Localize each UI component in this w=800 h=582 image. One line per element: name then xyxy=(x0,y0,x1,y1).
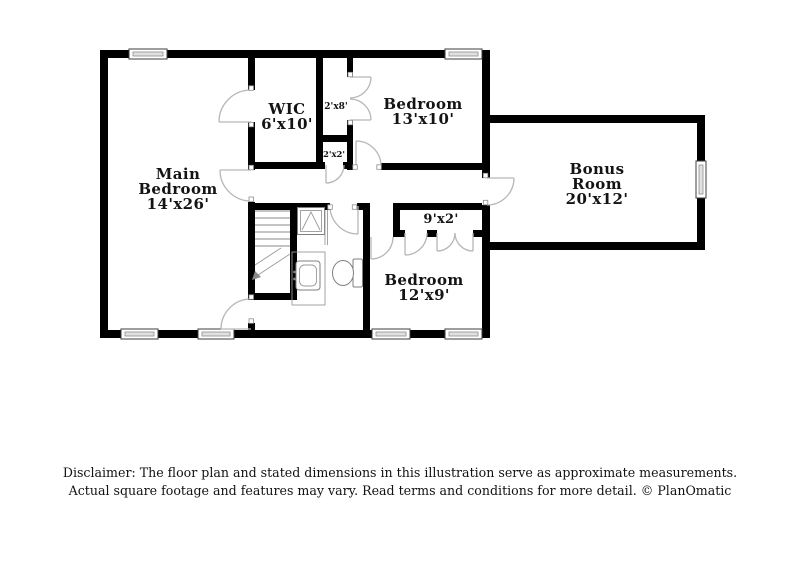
disclaimer-line1: Disclaimer: The floor plan and stated di… xyxy=(63,465,737,480)
window-bonus-room-right xyxy=(696,161,706,198)
label-bedroom-13x10: Bedroom 13'x10' xyxy=(383,95,462,128)
label-main-bedroom: Main Bedroom 14'x26' xyxy=(138,165,217,213)
label-bedroom-12x9: Bedroom 12'x9' xyxy=(384,271,463,304)
bedroom-12x9-dims: 12'x9' xyxy=(398,286,450,304)
shower-glass xyxy=(325,210,328,245)
door-main-bedroom-hall xyxy=(220,170,251,201)
window-main-bedroom-top xyxy=(129,49,167,59)
door-bedroom-13x10 xyxy=(356,141,381,166)
door-closet-2x8-double xyxy=(350,77,371,120)
toilet xyxy=(333,259,363,287)
label-closet-9x2: 9'x2' xyxy=(423,212,458,227)
disclaimer: Disclaimer: The floor plan and stated di… xyxy=(63,465,737,498)
door-closet-9x2-left xyxy=(405,233,427,255)
disclaimer-line2: Actual square footage and features may v… xyxy=(68,483,732,498)
window-bedroom12x9-bottom-1 xyxy=(372,329,410,339)
door-closet-9x2-double xyxy=(437,233,473,251)
door-bonus-room xyxy=(487,178,514,205)
floor-plan-svg: Main Bedroom 14'x26' WIC 6'x10' 2'x8' Be… xyxy=(0,0,800,582)
faucet-handle xyxy=(293,271,296,274)
window-bedroom12x9-bottom-2 xyxy=(445,329,482,339)
shower xyxy=(298,208,328,246)
closet-9x2-dims: 9'x2' xyxy=(423,212,458,227)
label-bonus-room: Bonus Room 20'x12' xyxy=(566,160,629,208)
staircase xyxy=(252,211,290,280)
window-main-bedroom-bottom-2 xyxy=(198,329,234,339)
label-closet-2x2: 2'x2' xyxy=(323,150,345,160)
door-bedroom-12x9 xyxy=(371,237,393,259)
bathroom-fixtures xyxy=(292,208,363,306)
label-closet-2x8: 2'x8' xyxy=(324,102,347,112)
label-wic: WIC 6'x10' xyxy=(261,100,313,133)
bonus-room-dims: 20'x12' xyxy=(566,190,629,208)
wic-dims: 6'x10' xyxy=(261,115,313,133)
window-main-bedroom-bottom-1 xyxy=(121,329,158,339)
window-bedroom13x10-top xyxy=(445,49,482,59)
floor-plan-canvas: Main Bedroom 14'x26' WIC 6'x10' 2'x8' Be… xyxy=(0,0,800,582)
door-closet-2x2 xyxy=(326,165,344,183)
faucet-handle xyxy=(293,278,296,281)
door-main-bedroom-bath xyxy=(221,299,251,329)
bedroom-13x10-dims: 13'x10' xyxy=(392,110,455,128)
room-labels: Main Bedroom 14'x26' WIC 6'x10' 2'x8' Be… xyxy=(138,95,628,304)
main-bedroom-dims: 14'x26' xyxy=(147,195,210,213)
closet-2x8-dims: 2'x8' xyxy=(324,102,347,112)
door-bathroom xyxy=(330,206,358,234)
door-wic xyxy=(219,90,251,122)
closet-2x2-dims: 2'x2' xyxy=(323,150,345,160)
